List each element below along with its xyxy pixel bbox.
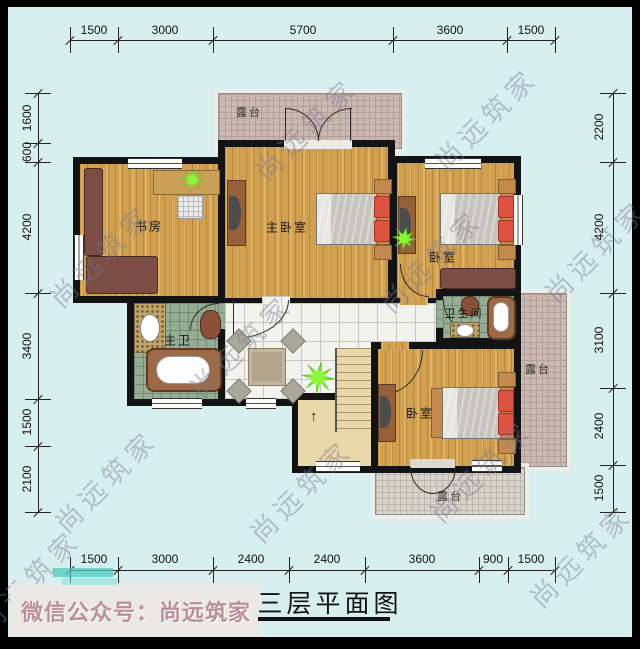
dim-bottom-7: 1500 [518,552,545,566]
master-bath-sink [140,314,160,342]
dim-left-3: 4200 [20,214,34,241]
study-sofa [86,256,158,294]
label-terrace-right: 露台 [525,361,551,377]
dim-top-4: 3600 [437,23,464,37]
window-hall-bottom [246,398,276,409]
dim-bottom-2: 3000 [152,552,179,566]
dim-bottom-4: 2400 [314,552,341,566]
dim-top-3: 5700 [290,23,317,37]
bathroom-tub [493,302,509,332]
bedroom-bottom-pillow-2 [498,413,514,435]
window-study-left [74,235,84,280]
dim-left-4: 3400 [20,333,34,360]
door-gap-bedroom-bottom [381,342,409,350]
dim-line-left [38,93,39,512]
label-terrace-top: 露台 [236,104,262,120]
wechat-banner: 微信公众号：尚远筑家 [10,584,262,637]
bedroom-right-pillow-1 [498,196,514,218]
master-bath-toilet [200,310,221,339]
dim-left-2: 600 [20,142,34,162]
bedroom-bottom-nightstand-bottom [498,439,516,454]
dim-bottom-6: 900 [483,552,503,566]
scan-artifact [53,568,113,577]
study-desk [153,170,220,195]
dim-left-1: 1600 [20,105,34,132]
bathroom-sink [456,324,474,337]
label-bedroom-bottom: 卧室 [406,405,434,422]
door-leaf-terrace-left [285,108,286,141]
bedroom-bottom-pillow-1 [498,390,514,412]
label-bathroom: 卫生间 [445,305,484,321]
terrace-right [517,293,567,467]
dim-top-1: 1500 [81,23,108,37]
dim-bottom-3: 2400 [238,552,265,566]
stair-direction-arrow: ↑ [310,408,318,425]
dim-right-5: 1500 [592,475,606,502]
plan-title: 三层平面图 [257,584,402,620]
dim-bottom-1: 1500 [81,552,108,566]
master-pillow-1 [374,196,390,218]
dim-line-top [70,40,555,41]
dim-right-2: 4200 [592,214,606,241]
master-bath-tub [156,356,210,384]
label-master-bedroom: 主卧室 [266,219,308,236]
window-study-top [128,158,182,169]
stair-flight [335,348,371,432]
dim-right-3: 3100 [592,327,606,354]
master-nightstand-top [374,179,392,194]
bedroom-right-pillow-2 [498,220,514,242]
window-bedroom-right-side [513,195,523,245]
label-terrace-bottom: 露台 [437,488,463,504]
wechat-label: 微信公众号：尚远筑家 [21,595,251,627]
door-gap-terrace-top [284,140,352,149]
dim-left-5: 1500 [20,409,34,436]
dim-line-bottom [70,570,555,571]
door-gap-bathroom [436,300,443,328]
bedroom-right-nightstand-top [498,179,516,194]
dining-table [248,348,286,386]
dim-right-1: 2200 [592,114,606,141]
label-master-bath: 主卫 [164,332,192,349]
master-pillow-2 [374,220,390,242]
scan-artifact [62,578,117,585]
window-master-bath-bottom [152,398,202,409]
dim-left-6: 2100 [20,466,34,493]
label-bedroom-right: 卧室 [429,249,457,266]
study-wardrobe [84,168,103,256]
dim-bottom-5: 3600 [409,552,436,566]
bedroom-right-nightstand-bottom [498,245,516,260]
dim-line-right [613,93,614,512]
master-bed [316,193,378,245]
door-gap-bedroom-right [400,296,428,305]
window-bedroom-bottom [472,460,502,472]
dim-top-2: 3000 [152,23,179,37]
window-bedroom-right-top [425,158,481,169]
floor-plan-image: ↑ [0,0,640,649]
dim-right-4: 2400 [592,413,606,440]
master-nightstand-bottom [374,245,392,260]
study-chair [177,195,203,219]
stair-landing-window [316,461,360,472]
bedroom-right-bench [440,268,516,289]
door-leaf-terrace-right [350,108,351,141]
title-underline [258,617,390,621]
dim-top-5: 1500 [518,23,545,37]
label-study: 书房 [135,218,163,235]
bedroom-bottom-nightstand-top [498,372,516,387]
bedroom-right-bed [440,193,502,245]
bedroom-bottom-bed [442,387,502,439]
